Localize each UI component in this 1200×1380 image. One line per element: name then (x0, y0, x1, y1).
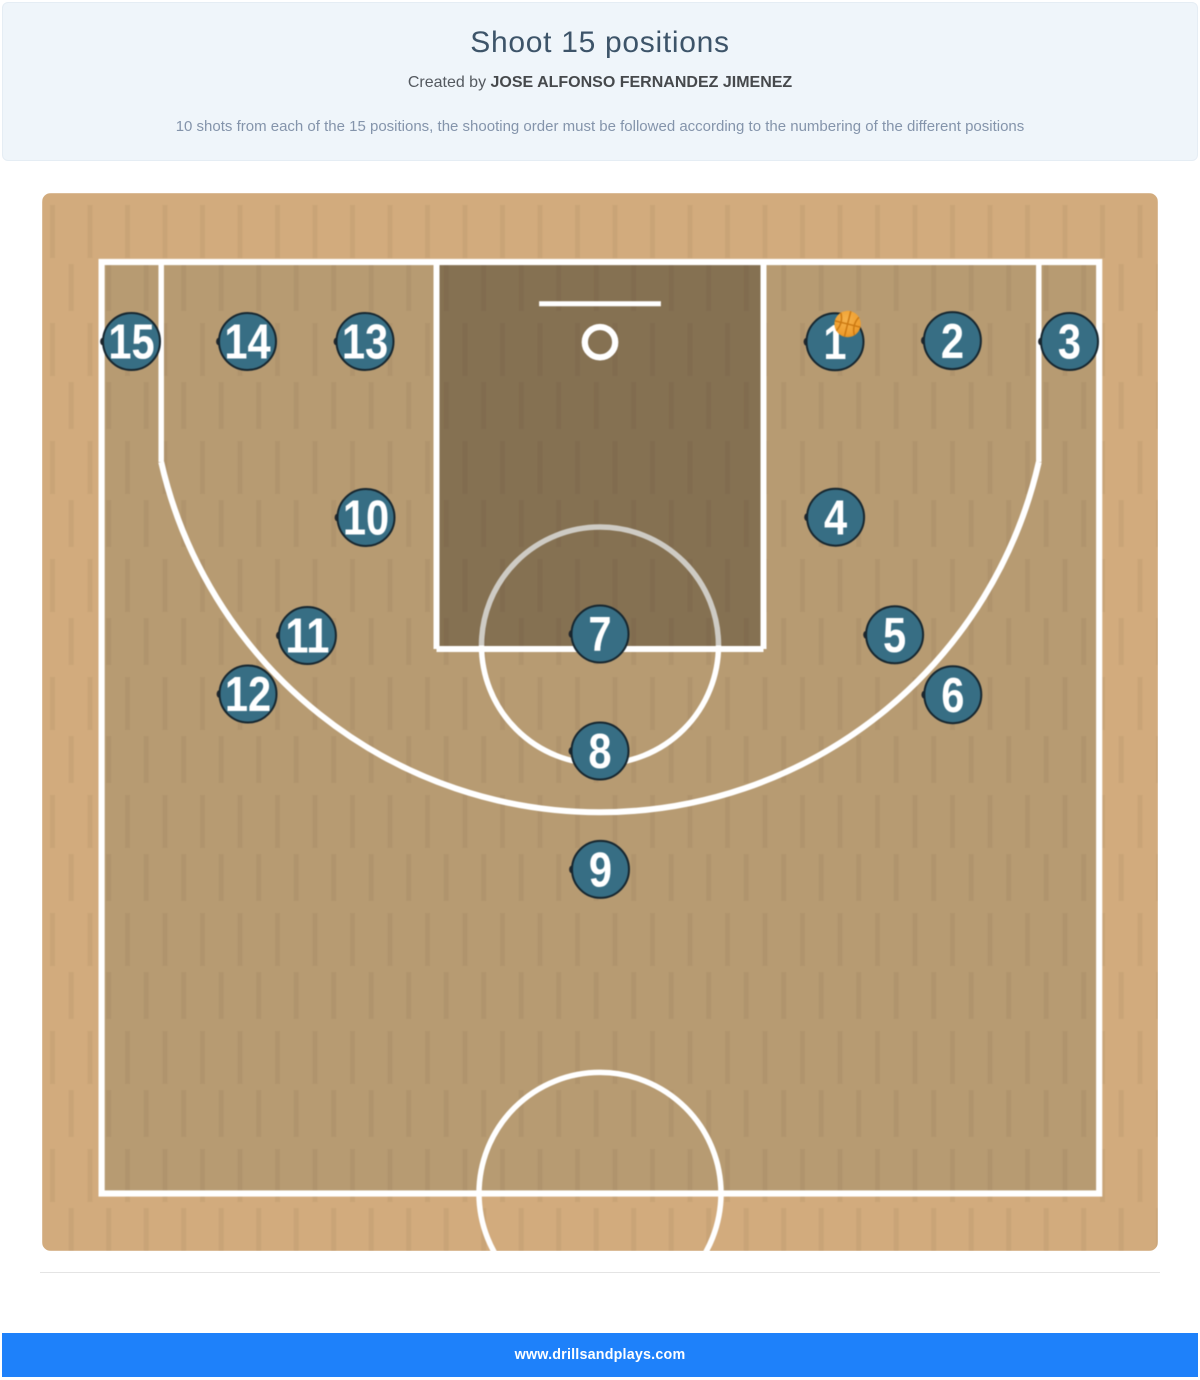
svg-text:12: 12 (225, 667, 271, 722)
svg-text:11: 11 (285, 609, 329, 664)
svg-text:5: 5 (883, 608, 906, 663)
svg-text:6: 6 (941, 668, 964, 723)
svg-text:4: 4 (824, 490, 848, 545)
svg-text:9: 9 (589, 842, 612, 897)
svg-text:10: 10 (343, 491, 389, 546)
svg-text:7: 7 (588, 607, 611, 662)
svg-text:2: 2 (941, 314, 964, 369)
svg-text:14: 14 (224, 315, 271, 370)
svg-text:8: 8 (588, 724, 611, 779)
svg-text:15: 15 (108, 315, 154, 370)
svg-text:13: 13 (342, 315, 388, 370)
svg-text:3: 3 (1058, 315, 1081, 370)
